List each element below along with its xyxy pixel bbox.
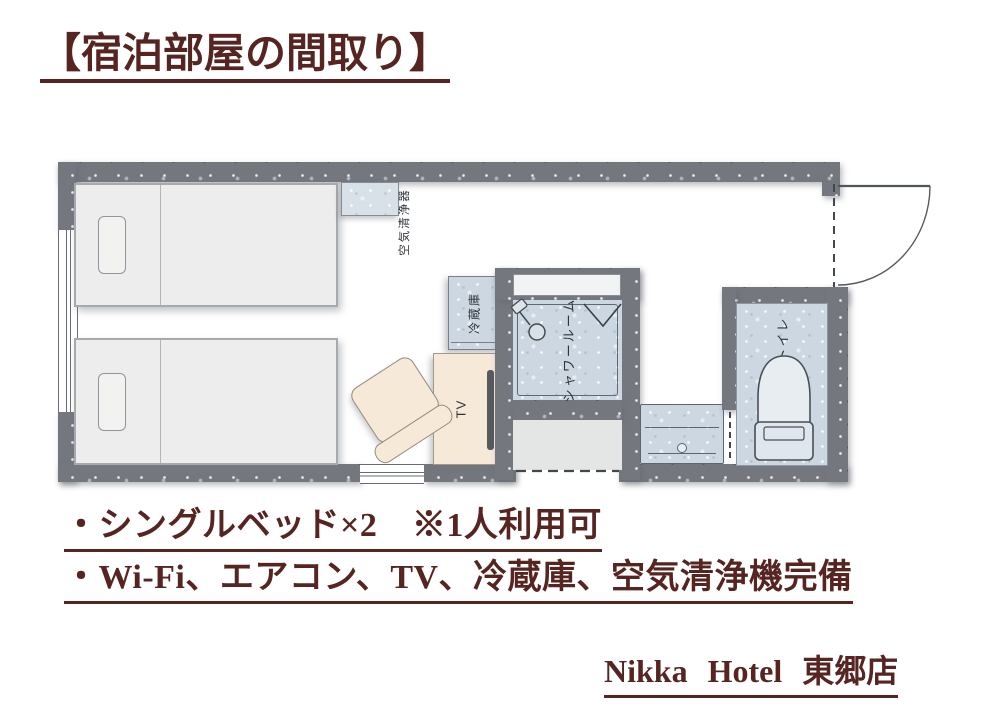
bed-2 — [74, 338, 338, 465]
air-purifier-label: 空気清浄器 — [396, 188, 412, 256]
entrance-door-swing-arc — [838, 186, 930, 285]
wall-shower-right — [622, 268, 640, 480]
tv-screen — [487, 370, 494, 450]
vanity-counter-line — [645, 427, 719, 428]
vanity-cabinet — [640, 404, 724, 464]
vanity-drain — [677, 443, 687, 453]
shower-room: シャワールーム — [513, 300, 622, 400]
bed-1 — [74, 183, 338, 307]
wall-top-right-stub — [822, 182, 840, 196]
shower-label: シャワールーム — [558, 298, 577, 403]
window-bottom — [360, 464, 424, 484]
shower-top-inset — [513, 274, 621, 296]
vanity-base-line — [648, 453, 716, 454]
bed-1-duvet-line — [160, 185, 161, 305]
wall-toilet-left — [722, 287, 736, 410]
fridge: 冷蔵庫 — [448, 276, 499, 350]
bed-2-duvet-line — [160, 340, 161, 463]
page: 【宿泊部屋の間取り】 空気清浄器 冷蔵庫 — [0, 0, 1000, 707]
wall-shower-bottom — [513, 400, 622, 420]
feature-line-1: ・シングルベッド×2 ※1人利用可 — [64, 506, 602, 552]
floor-plan: 空気清浄器 冷蔵庫 TV シャワールーム — [0, 0, 1000, 500]
toilet-label: トイレ — [773, 317, 792, 362]
hotel-name: Nikka Hotel 東郷店 — [604, 646, 898, 698]
wall-bottom-left — [58, 464, 360, 482]
fridge-label: 冷蔵庫 — [465, 292, 482, 334]
toilet-room: トイレ — [736, 303, 828, 466]
entry-recess — [513, 420, 622, 470]
wall-top — [58, 162, 840, 182]
wall-bottom-right — [619, 464, 848, 482]
fridge-door-line — [451, 342, 496, 343]
bed-1-pillow — [98, 216, 126, 274]
bed-2-pillow — [98, 373, 126, 431]
feature-line-2: ・Wi-Fi、エアコン、TV、冷蔵庫、空気清浄機完備 — [64, 558, 853, 604]
air-purifier — [341, 182, 399, 216]
wall-toilet-right — [826, 287, 848, 482]
